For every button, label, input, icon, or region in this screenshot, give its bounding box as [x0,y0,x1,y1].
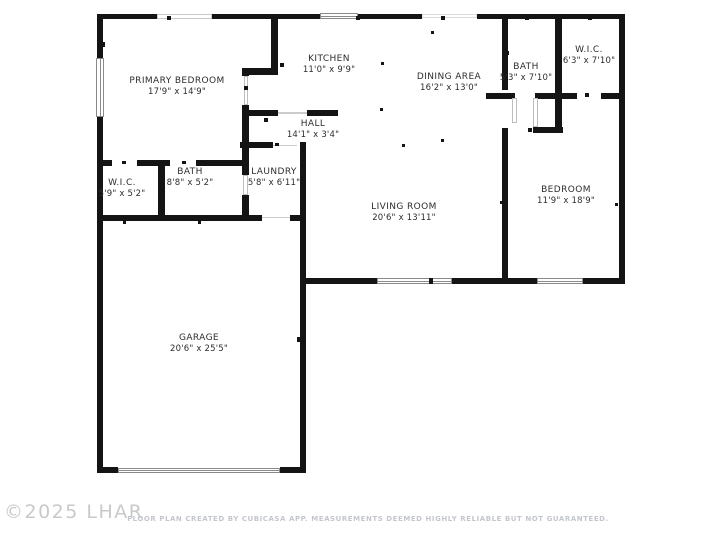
wall-segment [502,128,509,284]
wall-tick [100,337,103,342]
wall-segment [196,160,248,166]
wall-tick [441,16,445,20]
wall-segment [97,117,103,473]
wall-segment [452,278,537,284]
wall-tick [100,42,105,47]
room-name: BATH [500,62,552,73]
window-divider [321,16,357,17]
wall-segment [533,127,563,134]
room-label-hall: HALL14'1" x 3'4" [287,119,339,141]
wall-segment [271,17,278,74]
room-name: LIVING ROOM [371,202,437,213]
room-label-primary-bedroom: PRIMARY BEDROOM17'9" x 14'9" [129,76,224,98]
wall-segment [555,17,562,130]
room-dimensions: 20'6" x 13'11" [371,213,437,224]
wall-tick [431,31,434,34]
wall-tick [525,17,529,20]
room-label-bath-bottom: BATH8'8" x 5'2" [167,167,214,189]
room-name: BATH [167,167,214,178]
room-label-laundry: LAUNDRY5'8" x 6'11" [248,167,300,189]
wall-segment [486,93,515,99]
window-divider [538,281,582,282]
wall-segment [601,93,621,99]
floor-plan-canvas: PRIMARY BEDROOM17'9" x 14'9"KITCHEN11'0"… [0,0,720,540]
room-name: W.I.C. [563,45,615,56]
wall-tick [585,93,589,97]
wall-tick [402,144,405,147]
wall-tick [429,278,433,285]
wall-segment [97,215,262,221]
window-divider [100,59,101,116]
room-label-living-room: LIVING ROOM20'6" x 13'11" [371,202,437,224]
room-name: GARAGE [170,333,228,344]
wall-tick [588,17,592,20]
wall-segment [97,160,112,166]
wall-tick [280,63,284,67]
window [320,13,358,20]
room-dimensions: 11'9" x 18'9" [537,196,595,207]
wall-segment [583,278,625,284]
room-label-bedroom: BEDROOM11'9" x 18'9" [537,185,595,207]
door-leaf [512,98,517,123]
room-name: LAUNDRY [248,167,300,178]
wall-tick [441,139,444,142]
wall-segment [242,195,249,221]
room-name: W.I.C. [99,178,146,189]
wall-tick [556,51,560,55]
window [422,14,477,18]
wall-segment [97,14,157,20]
room-name: KITCHEN [303,54,355,65]
wall-segment [242,68,249,76]
wall-tick [500,201,503,204]
room-dimensions: 5'9" x 5'2" [99,189,146,200]
wall-tick [198,221,201,224]
room-name: DINING AREA [417,72,481,83]
wall-tick [167,16,171,20]
wall-tick [182,161,186,164]
room-label-wic-top: W.I.C.6'3" x 7'10" [563,45,615,67]
wall-tick [505,51,509,55]
door-leaf [533,98,538,127]
window-divider [119,470,279,471]
window [118,468,280,473]
room-dimensions: 16'2" x 13'0" [417,83,481,94]
window [377,278,452,285]
room-label-bath-top: BATH5'3" x 7'10" [500,62,552,84]
room-dimensions: 5'3" x 7'10" [500,73,552,84]
wall-segment [307,110,338,116]
room-label-wic-bottom: W.I.C.5'9" x 5'2" [99,178,146,200]
room-dimensions: 17'9" x 14'9" [129,87,224,98]
window [157,14,212,20]
wall-tick [528,128,532,132]
wall-segment [212,14,320,20]
wall-tick [122,161,126,164]
wall-tick [380,108,383,111]
wall-segment [158,160,165,215]
door-leaf [244,76,249,105]
room-dimensions: 8'8" x 5'2" [167,178,214,189]
room-dimensions: 6'3" x 7'10" [563,56,615,67]
wall-tick [264,118,268,122]
room-label-dining-area: DINING AREA16'2" x 13'0" [417,72,481,94]
room-label-garage: GARAGE20'6" x 25'5" [170,333,228,355]
wall-segment [300,278,378,284]
wall-tick [275,143,279,146]
wall-tick [356,16,360,20]
room-label-kitchen: KITCHEN11'0" x 9'9" [303,54,355,76]
room-dimensions: 11'0" x 9'9" [303,65,355,76]
footer-disclaimer: FLOOR PLAN CREATED BY CUBICASA APP. MEAS… [0,515,720,523]
wall-segment [97,467,118,473]
room-dimensions: 14'1" x 3'4" [287,130,339,141]
window [537,278,583,285]
window [96,58,104,117]
room-dimensions: 20'6" x 25'5" [170,344,228,355]
wall-segment [242,105,249,148]
wall-tick [297,337,300,342]
wall-tick [123,221,126,224]
wall-tick [381,62,384,65]
wall-segment [137,160,170,166]
wall-tick [244,86,248,90]
wall-segment [477,14,625,20]
door-threshold [262,217,290,219]
room-name: HALL [287,119,339,130]
room-name: PRIMARY BEDROOM [129,76,224,87]
door-threshold [278,112,307,114]
wall-segment [619,14,625,284]
room-name: BEDROOM [537,185,595,196]
wall-segment [300,142,307,473]
room-dimensions: 5'8" x 6'11" [248,178,300,189]
wall-segment [358,14,422,20]
wall-segment [97,14,103,59]
window-divider [378,281,451,282]
wall-tick [615,203,618,206]
